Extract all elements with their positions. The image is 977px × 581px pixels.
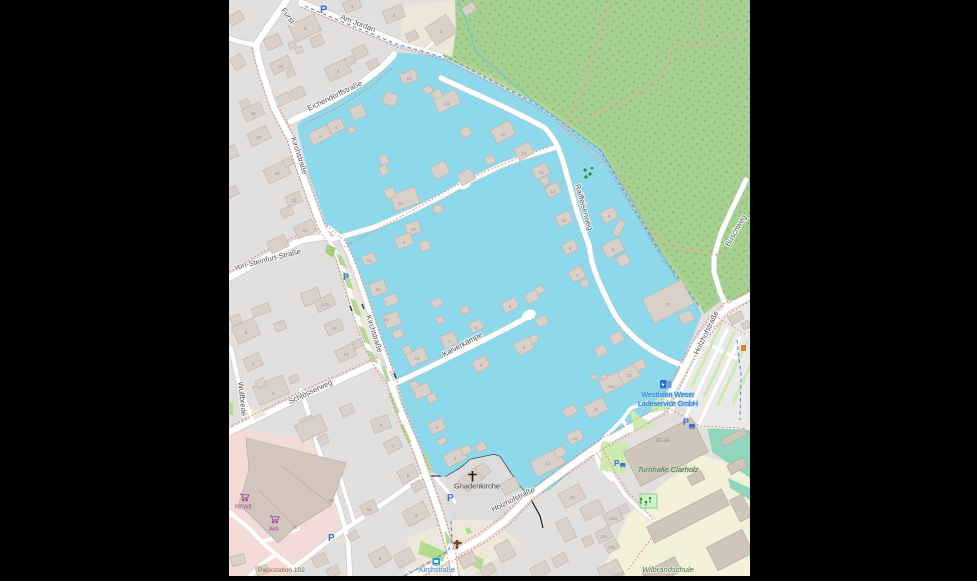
svg-text:13: 13 <box>550 189 556 194</box>
svg-text:29: 29 <box>250 111 256 116</box>
svg-text:P: P <box>343 272 349 282</box>
svg-text:P: P <box>328 533 335 544</box>
svg-text:21: 21 <box>302 228 308 233</box>
svg-text:7: 7 <box>392 444 395 449</box>
svg-text:20: 20 <box>569 495 575 500</box>
svg-text:86: 86 <box>328 498 334 503</box>
svg-text:14: 14 <box>383 317 389 322</box>
svg-text:4: 4 <box>252 361 255 366</box>
svg-text:Westfalen Weser: Westfalen Weser <box>641 392 695 399</box>
svg-text:1a: 1a <box>366 258 372 263</box>
svg-text:6: 6 <box>480 363 483 368</box>
svg-text:Turnhalle Clarholz: Turnhalle Clarholz <box>637 465 698 474</box>
svg-text:8: 8 <box>608 214 611 219</box>
svg-text:3: 3 <box>475 325 478 330</box>
svg-text:17: 17 <box>545 461 551 466</box>
svg-text:P: P <box>320 4 327 16</box>
svg-text:11: 11 <box>562 218 567 223</box>
svg-text:20: 20 <box>410 227 416 232</box>
svg-text:Packstation 102: Packstation 102 <box>258 567 305 574</box>
svg-text:7: 7 <box>576 273 579 278</box>
svg-text:3: 3 <box>415 513 418 518</box>
svg-text:P: P <box>614 459 620 468</box>
svg-text:16: 16 <box>375 287 381 292</box>
svg-text:19: 19 <box>500 132 506 137</box>
svg-text:6: 6 <box>612 247 615 252</box>
svg-text:5: 5 <box>407 473 410 478</box>
svg-text:23: 23 <box>626 373 632 378</box>
svg-text:8: 8 <box>523 345 526 350</box>
svg-text:88: 88 <box>292 525 298 530</box>
svg-text:2: 2 <box>319 134 322 139</box>
svg-text:21: 21 <box>593 407 599 412</box>
svg-text:9: 9 <box>379 556 382 561</box>
svg-text:25: 25 <box>274 171 280 176</box>
svg-text:22-24: 22-24 <box>656 438 669 444</box>
svg-text:6: 6 <box>454 456 457 461</box>
svg-text:15: 15 <box>331 326 337 331</box>
svg-text:12: 12 <box>414 356 420 361</box>
svg-text:8: 8 <box>436 425 439 430</box>
svg-text:15: 15 <box>538 170 544 175</box>
svg-text:20a: 20a <box>609 516 617 521</box>
svg-text:6: 6 <box>245 330 248 335</box>
svg-text:P: P <box>447 493 454 504</box>
svg-text:Ladeservice GmbH: Ladeservice GmbH <box>638 401 698 408</box>
svg-text:4: 4 <box>403 240 406 245</box>
svg-text:17a: 17a <box>321 302 329 307</box>
svg-text:5: 5 <box>337 69 340 74</box>
svg-text:21a: 21a <box>607 384 615 389</box>
svg-text:20c: 20c <box>600 534 608 539</box>
svg-text:22: 22 <box>397 201 403 206</box>
svg-text:17: 17 <box>521 151 527 156</box>
svg-text:P: P <box>683 417 689 427</box>
svg-text:4: 4 <box>304 26 307 31</box>
svg-text:9: 9 <box>569 246 572 251</box>
svg-text:28: 28 <box>278 64 284 69</box>
svg-text:4: 4 <box>335 125 338 130</box>
svg-text:10: 10 <box>406 76 412 81</box>
svg-text:3: 3 <box>440 29 443 34</box>
svg-text:19: 19 <box>572 436 578 441</box>
svg-text:21: 21 <box>444 101 450 106</box>
svg-text:Gnadenkirche: Gnadenkirche <box>454 482 500 491</box>
svg-text:3: 3 <box>351 4 354 9</box>
svg-text:9a: 9a <box>366 507 372 512</box>
svg-text:5: 5 <box>393 13 396 18</box>
svg-text:Kirchstraße: Kirchstraße <box>419 567 455 574</box>
svg-text:Aldi: Aldi <box>269 527 279 533</box>
svg-text:1: 1 <box>448 339 451 344</box>
svg-text:27: 27 <box>256 135 262 140</box>
svg-text:9: 9 <box>380 423 383 428</box>
svg-text:Wilbrandschule: Wilbrandschule <box>642 565 694 574</box>
svg-text:23: 23 <box>291 198 297 203</box>
svg-text:REWE: REWE <box>235 505 253 511</box>
svg-text:2: 2 <box>272 391 275 396</box>
svg-text:20b: 20b <box>608 545 616 550</box>
svg-text:13: 13 <box>343 352 349 357</box>
svg-text:5: 5 <box>509 304 512 309</box>
svg-text:27: 27 <box>665 302 671 307</box>
